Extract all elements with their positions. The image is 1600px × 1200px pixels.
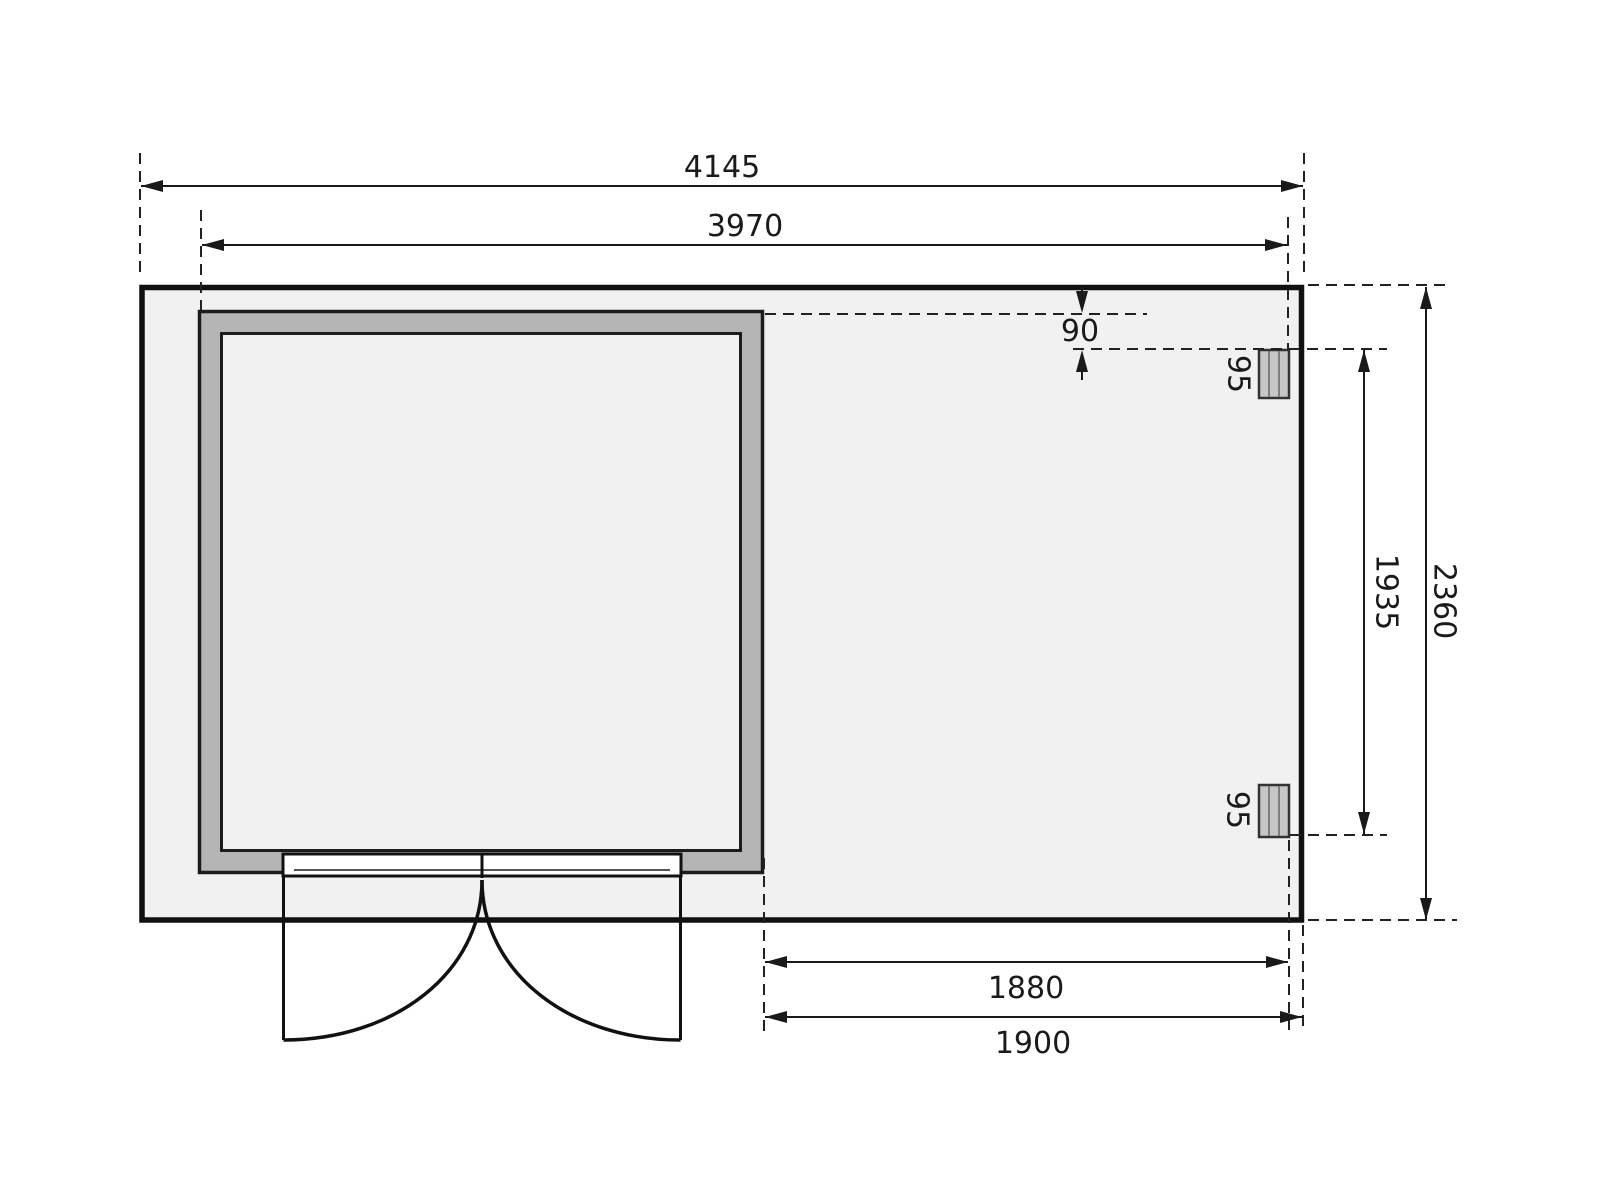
dim-label-inner-width: 3970 bbox=[707, 209, 783, 244]
floor-plan-drawing: 4145 3970 90 2360 1935 95 95 1880 1900 bbox=[0, 0, 1600, 1200]
dim-label-annex-outer: 1900 bbox=[995, 1026, 1071, 1061]
post-top bbox=[1259, 350, 1289, 398]
dim-label-post-span: 1935 bbox=[1369, 554, 1404, 630]
dim-label-total-width: 4145 bbox=[684, 150, 760, 185]
dim-label-annex-inner: 1880 bbox=[988, 971, 1064, 1006]
door-threshold bbox=[283, 854, 681, 878]
dim-label-post-width-top: 95 bbox=[1221, 355, 1256, 393]
room-interior bbox=[222, 334, 741, 851]
post-bottom bbox=[1259, 785, 1289, 837]
dim-label-total-depth: 2360 bbox=[1427, 563, 1462, 639]
post-bottom-body bbox=[1259, 785, 1289, 837]
post-top-body bbox=[1259, 350, 1289, 398]
dim-label-post-width-bottom: 95 bbox=[1220, 791, 1255, 829]
floor-plan-page: 4145 3970 90 2360 1935 95 95 1880 1900 bbox=[0, 0, 1600, 1200]
dim-label-back-offset: 90 bbox=[1061, 314, 1099, 349]
